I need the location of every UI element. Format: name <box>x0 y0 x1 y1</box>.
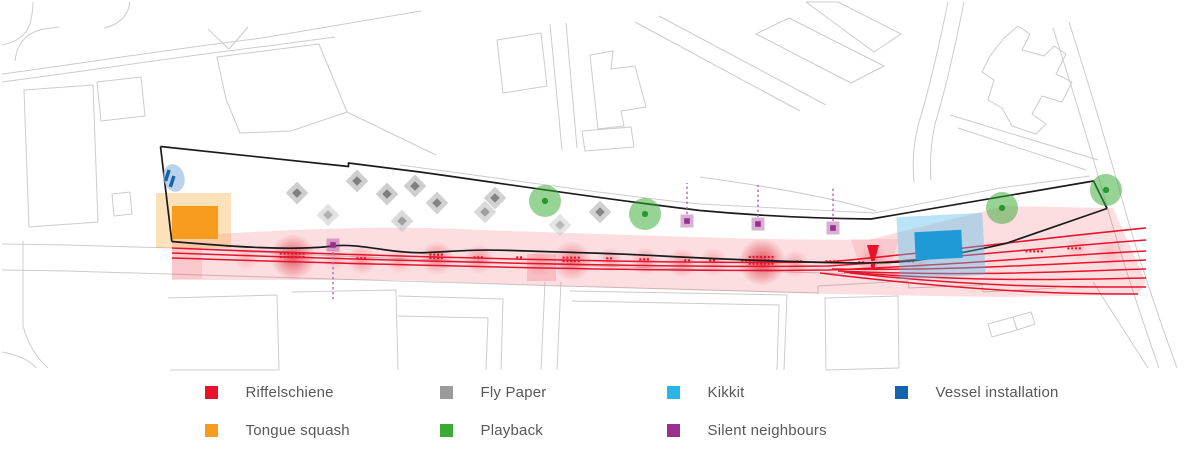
basemap-line <box>988 317 1017 337</box>
riffelschiene-dot <box>303 253 305 255</box>
riffelschiene-dot <box>760 263 762 265</box>
riffelschiene-dot <box>284 256 286 258</box>
riffelschiene-dot <box>566 260 568 262</box>
basemap-line <box>806 2 901 52</box>
silent-neighbours-marker <box>684 218 690 224</box>
riffelschiene-dot <box>760 256 762 258</box>
silent-neighbours-marker <box>830 225 836 231</box>
fly-paper-marker <box>286 182 309 205</box>
riffelschiene-dot <box>433 254 435 256</box>
basemap-line <box>168 295 279 370</box>
riffelschiene-dot <box>753 263 755 265</box>
riffelschiene-dot <box>295 253 297 255</box>
riffelschiene-dot <box>606 257 608 259</box>
basemap-line <box>756 18 884 83</box>
riffelschiene-dot <box>433 257 435 259</box>
riffelschiene-dot <box>563 260 565 262</box>
silent-neighbours-marker <box>330 242 336 248</box>
riffelschiene-dot <box>578 257 580 259</box>
basemap-line <box>112 192 132 216</box>
riffelschiene-dot <box>291 256 293 258</box>
silent-neighbours-marker <box>755 221 761 227</box>
basemap-line <box>550 24 562 150</box>
basemap-line <box>2 352 36 368</box>
riffelschiene-dot <box>756 256 758 258</box>
basemap-line <box>347 112 436 155</box>
riffelschiene-dot <box>1071 247 1073 249</box>
basemap-line <box>982 26 1072 134</box>
warning-exclamation-dot <box>871 263 876 268</box>
riffelschiene-dot <box>772 256 774 258</box>
riffelschiene-dot <box>303 256 305 258</box>
riffelschiene-dot <box>753 256 755 258</box>
riffelschiene-dot <box>570 257 572 259</box>
riffelschiene-dot <box>1026 250 1028 252</box>
riffelschiene-dot <box>520 256 522 258</box>
basemap-line <box>590 51 646 129</box>
basemap-line <box>931 2 965 180</box>
playback-center-dot <box>642 211 648 217</box>
riffelschiene-dot <box>647 258 649 260</box>
riffelschiene-dot <box>684 259 686 261</box>
basemap-line <box>825 296 899 370</box>
riffelschiene-dot <box>299 256 301 258</box>
riffelschiene-dot <box>516 256 518 258</box>
basemap-line <box>497 33 547 93</box>
riffelschiene-dot <box>280 256 282 258</box>
basemap-line <box>1013 312 1035 330</box>
riffelschiene-dot <box>437 257 439 259</box>
riffelschiene-dot <box>772 263 774 265</box>
riffelschiene-dot <box>287 256 289 258</box>
basemap-line <box>398 316 488 370</box>
riffelschiene-dot <box>429 257 431 259</box>
riffelschiene-dot <box>1079 247 1081 249</box>
basemap-line <box>557 282 561 370</box>
tongue-squash-area <box>172 206 218 239</box>
riffelschiene-dot <box>570 260 572 262</box>
riffelschiene-hotspot <box>781 250 809 278</box>
basemap-line <box>292 290 398 370</box>
fly-paper-markers <box>286 170 612 237</box>
site-plan: Riffelschiene Tongue squash Fly Paper Pl… <box>0 0 1200 464</box>
riffelschiene-dot <box>1067 247 1069 249</box>
fly-paper-marker <box>404 175 427 198</box>
basemap-line <box>950 115 1098 160</box>
fly-paper-marker <box>376 183 399 206</box>
riffelschiene-dot <box>360 257 362 259</box>
fly-paper-marker <box>589 201 612 224</box>
basemap-line <box>572 301 779 370</box>
riffelschiene-dot <box>749 256 751 258</box>
riffelschiene-dot <box>441 254 443 256</box>
riffelschiene-dot <box>764 256 766 258</box>
riffelschiene-dot <box>713 259 715 261</box>
site-plan-map <box>0 0 1200 464</box>
riffelschiene-dot <box>295 256 297 258</box>
riffelschiene-dot <box>477 256 479 258</box>
riffelschiene-dot <box>566 257 568 259</box>
riffelschiene-dot <box>768 263 770 265</box>
riffelschiene-dot <box>364 257 366 259</box>
basemap-line <box>208 27 248 49</box>
riffelschiene-dot <box>610 257 612 259</box>
riffelschiene-dot <box>299 253 301 255</box>
riffelschiene-dot <box>284 253 286 255</box>
riffelschiene-dot <box>574 260 576 262</box>
riffelschiene-dot <box>291 253 293 255</box>
riffelschiene-dot <box>688 259 690 261</box>
riffelschiene-dot <box>643 258 645 260</box>
basemap-line <box>2 11 421 74</box>
playback-center-dot <box>542 198 548 204</box>
playback-center-dot <box>1103 187 1109 193</box>
riffelschiene-dot <box>563 257 565 259</box>
riffelschiene-dot <box>287 253 289 255</box>
riffelschiene-dot <box>1041 250 1043 252</box>
riffelschiene-soft-patch <box>172 247 202 279</box>
basemap-line <box>700 177 876 211</box>
basemap-line <box>1069 22 1177 368</box>
vessel-installation-marker <box>160 162 187 194</box>
basemap-line <box>97 77 145 121</box>
basemap-line <box>2 2 33 45</box>
riffelschiene-dot <box>429 254 431 256</box>
playback-center-dot <box>999 205 1005 211</box>
fly-paper-marker <box>346 170 369 193</box>
riffelschiene-dot <box>764 263 766 265</box>
kikkit-area <box>914 230 962 260</box>
riffelschiene-dot <box>639 258 641 260</box>
riffelschiene-dot <box>437 254 439 256</box>
riffelschiene-dot <box>709 259 711 261</box>
basemap-line <box>541 282 545 370</box>
basemap-line <box>15 27 59 61</box>
basemap-line <box>2 37 335 82</box>
riffelschiene-dot <box>574 257 576 259</box>
riffelschiene-dot <box>1033 250 1035 252</box>
riffelschiene-dot <box>481 256 483 258</box>
basemap-line <box>104 2 129 28</box>
basemap-line <box>23 241 48 368</box>
basemap-line <box>635 22 800 111</box>
riffelschiene-dot <box>280 253 282 255</box>
riffelschiene-dot <box>473 256 475 258</box>
basemap-line <box>24 85 98 227</box>
fly-paper-marker <box>317 204 340 227</box>
riffelschiene-dot <box>768 256 770 258</box>
basemap-line <box>958 128 1086 170</box>
riffelschiene-dot <box>749 263 751 265</box>
riffelschiene-hotspot <box>233 245 259 271</box>
riffelschiene-dot <box>1037 250 1039 252</box>
riffelschiene-dot <box>1029 250 1031 252</box>
riffelschiene-dot <box>1075 247 1077 249</box>
riffelschiene-hotspot <box>667 248 697 278</box>
basemap-line <box>566 23 577 148</box>
fly-paper-marker <box>426 192 449 215</box>
riffelschiene-dot <box>756 263 758 265</box>
basemap-line <box>217 44 347 133</box>
riffelschiene-dot <box>578 260 580 262</box>
riffelschiene-dot <box>441 257 443 259</box>
riffelschiene-dot <box>356 257 358 259</box>
basemap-line <box>659 16 826 105</box>
basemap-line <box>582 127 634 151</box>
